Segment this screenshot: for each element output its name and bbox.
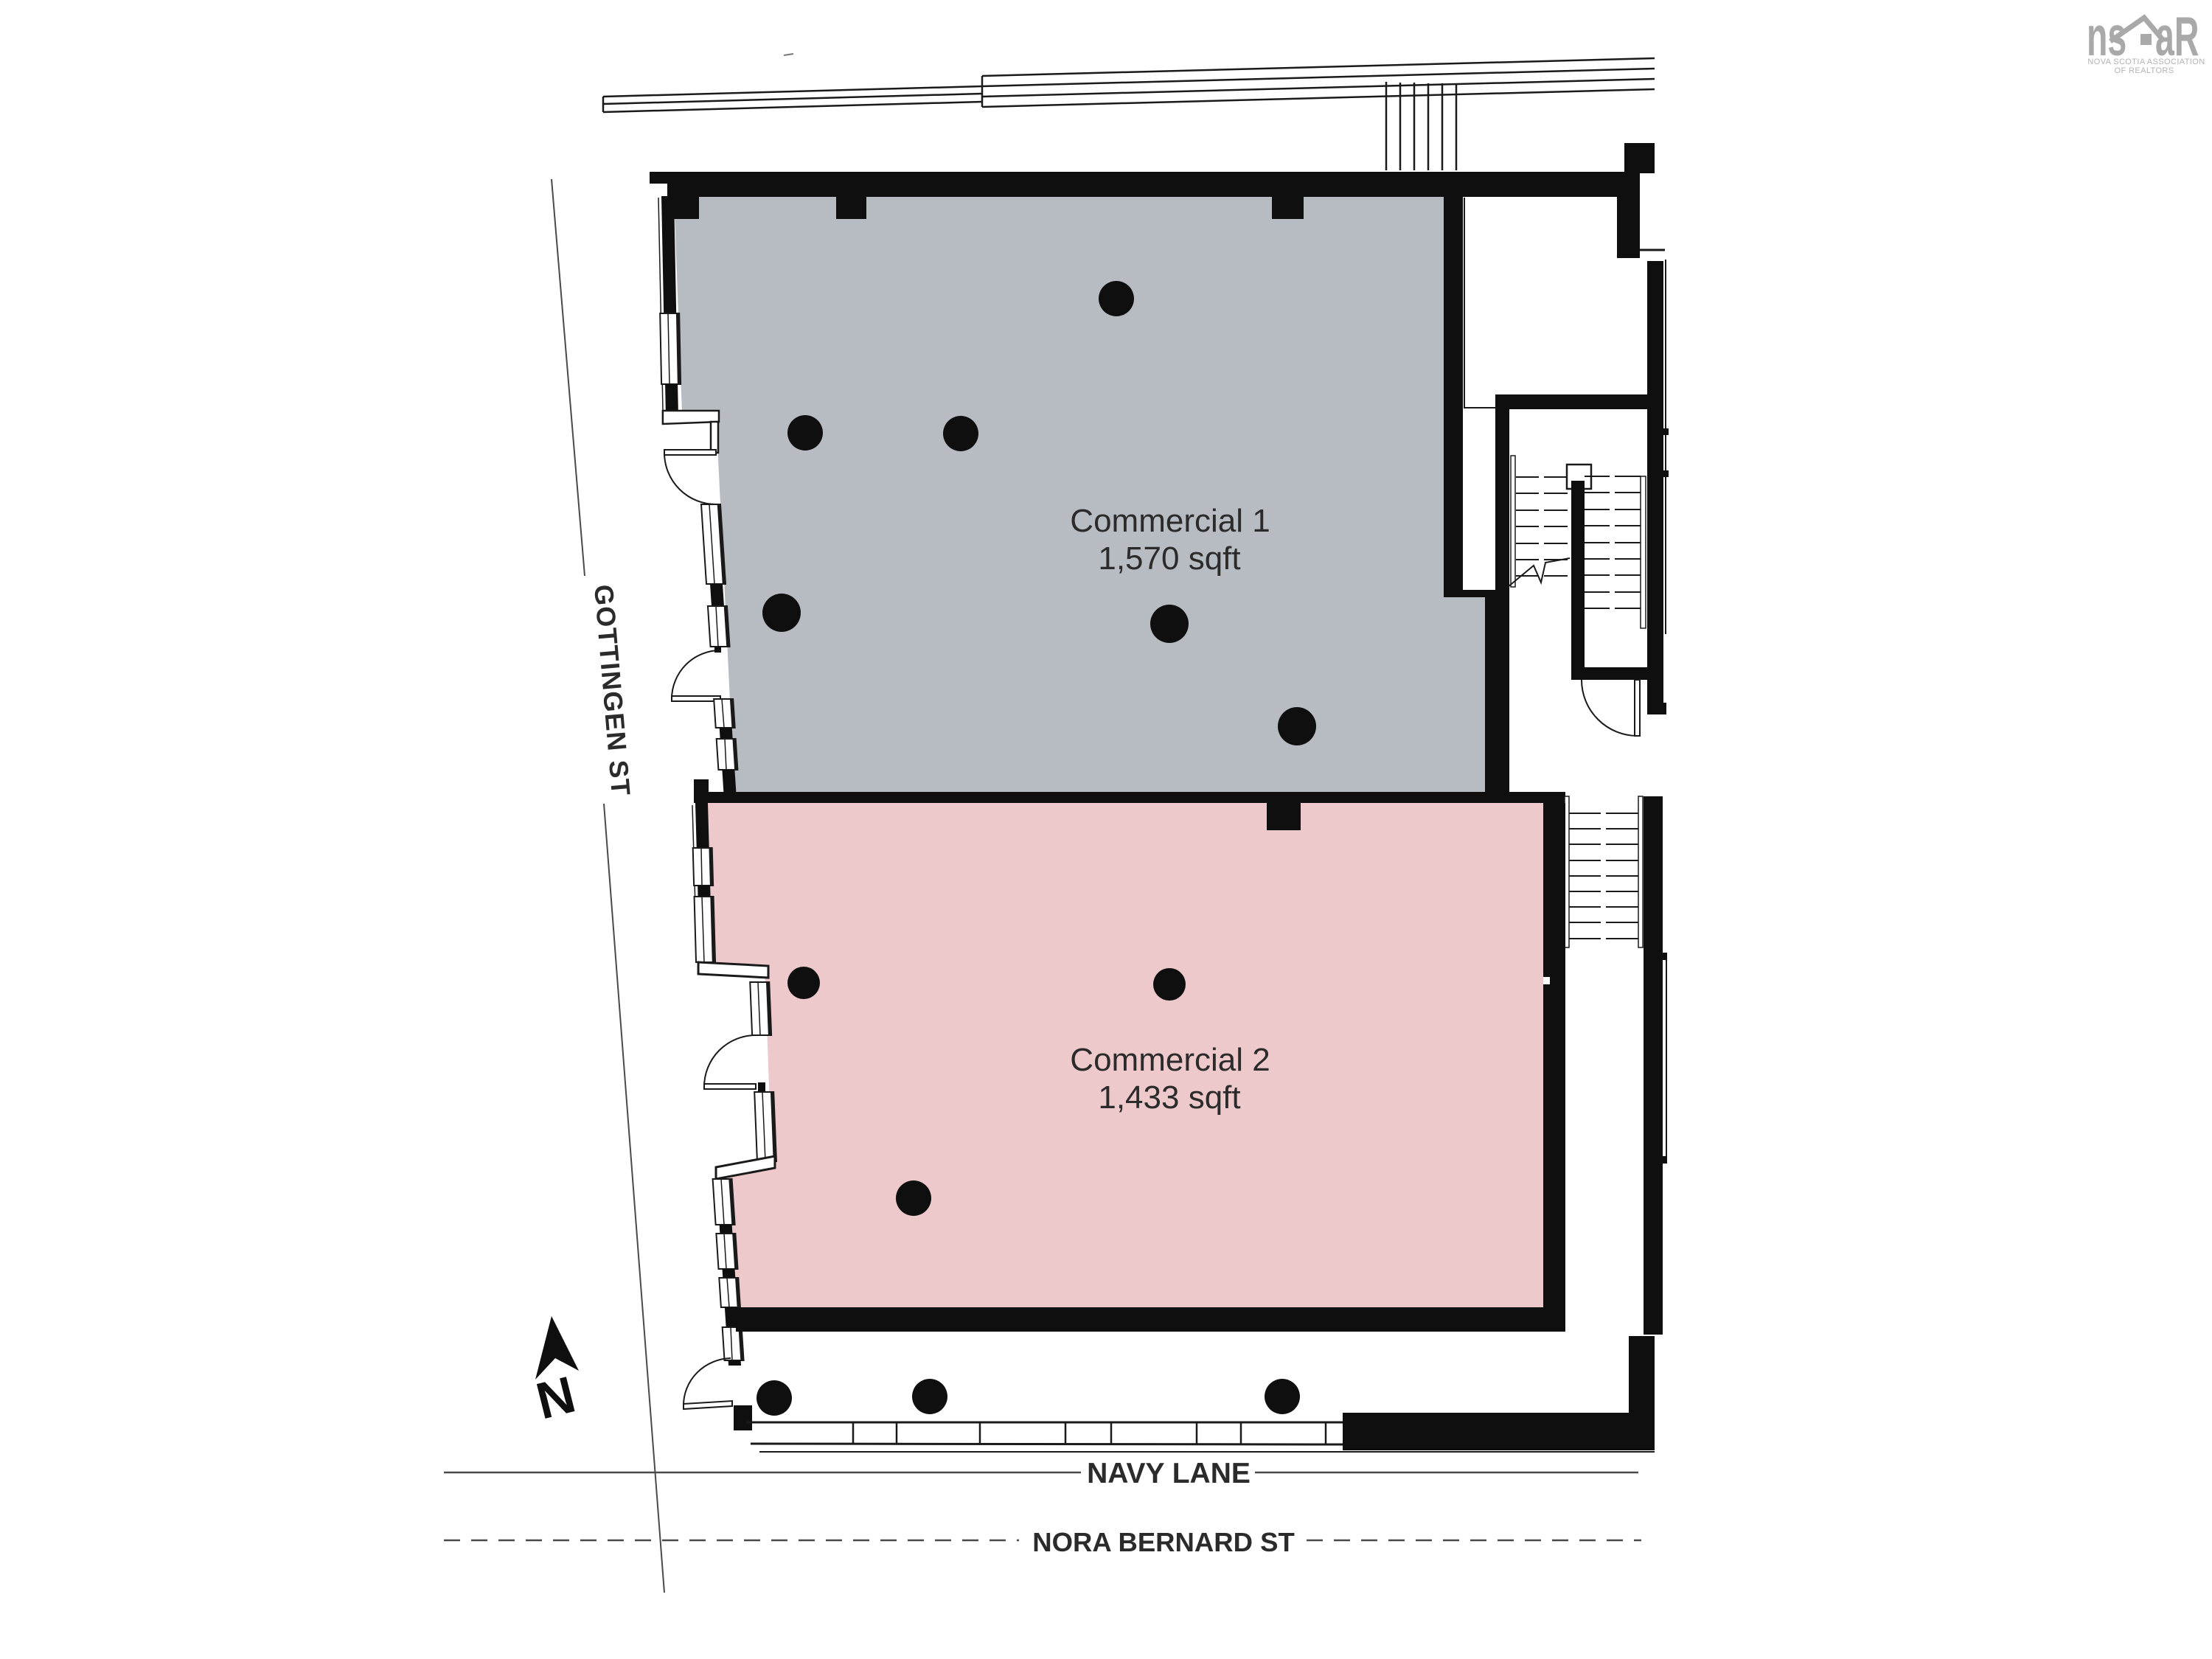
svg-text:1,433 sqft: 1,433 sqft [1098, 1079, 1240, 1116]
svg-text:OF REALTORS: OF REALTORS [2114, 66, 2174, 75]
svg-text:NOVA SCOTIA ASSOCIATION: NOVA SCOTIA ASSOCIATION [2087, 58, 2205, 66]
svg-text:NORA BERNARD ST: NORA BERNARD ST [1032, 1527, 1295, 1557]
svg-text:1,570 sqft: 1,570 sqft [1098, 540, 1240, 577]
svg-text:NAVY LANE: NAVY LANE [1087, 1458, 1251, 1489]
svg-text:Commercial 1: Commercial 1 [1070, 503, 1270, 539]
svg-text:Commercial 2: Commercial 2 [1070, 1042, 1270, 1078]
